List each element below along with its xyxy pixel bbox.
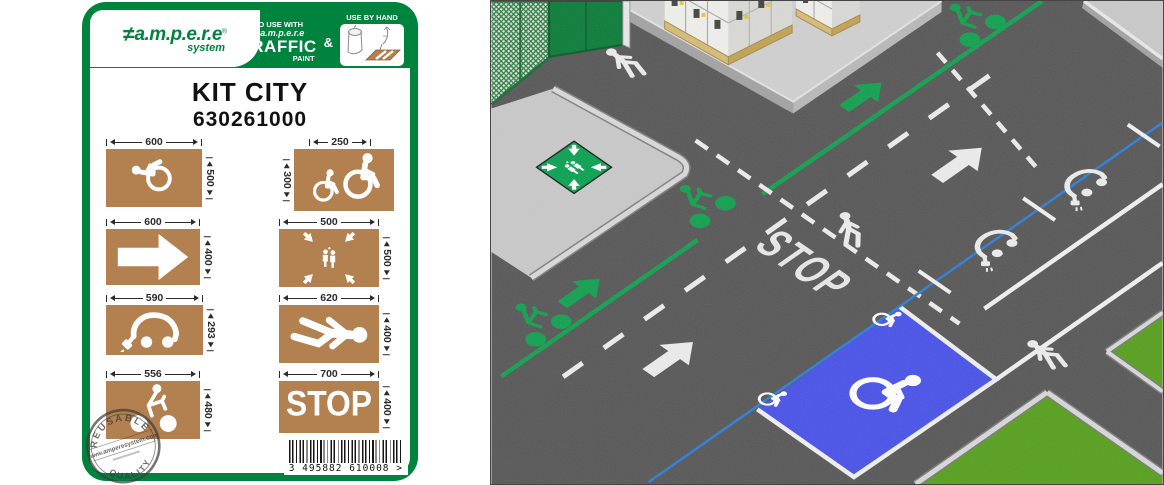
stencil-item-stop: 700 STOP 400 [279, 368, 394, 439]
texture-overlay [491, 1, 1162, 484]
dim-value: 250 [328, 136, 352, 148]
width-dimension: 250 [309, 136, 371, 148]
dim-value: 400 [381, 395, 393, 419]
stencil-box [294, 149, 394, 211]
stop-text-icon: STOP [283, 384, 375, 430]
stencil-item-arrow: 600 400 [106, 216, 218, 287]
stencil-box [279, 305, 379, 363]
dim-value: 500 [317, 216, 341, 228]
traffic-paint-block: TO USE WITH ≠ a.m.p.e.r.e TRAFFIC PAINT [240, 21, 316, 64]
brand-logo: ≠a.m.p.e.r.e® system [123, 24, 227, 54]
width-dimension: 620 [279, 292, 379, 304]
dim-value: 590 [143, 292, 167, 304]
dim-value: 300 [281, 168, 293, 192]
width-dimension: 600 [106, 136, 202, 148]
kit-card-inner: ≠a.m.p.e.r.e® system TO USE WITH ≠ a.m.p… [90, 10, 410, 473]
stencil-item-electric-car: 590 293 [106, 292, 218, 363]
brand-registered: ® [222, 28, 227, 35]
dim-value: 620 [317, 292, 341, 304]
height-dimension: 500 [204, 157, 216, 199]
kit-city-product-sheet: ≠a.m.p.e.r.e® system TO USE WITH ≠ a.m.p… [0, 0, 1164, 485]
street-scene-illustration: STOP [490, 0, 1164, 485]
dim-value: 400 [381, 322, 393, 346]
width-dimension: 556 [106, 368, 200, 380]
dim-value: 700 [317, 368, 341, 380]
header-right: TO USE WITH ≠ a.m.p.e.r.e TRAFFIC PAINT … [240, 13, 404, 71]
product-reference: 630261000 [90, 108, 410, 132]
barcode-suffix: > [396, 463, 403, 474]
dim-value: 400 [202, 245, 214, 269]
pedestrian-icon [285, 309, 373, 359]
dim-value: 600 [142, 136, 166, 148]
stencil-item-meeting-point: 500 [279, 216, 394, 287]
dim-value: 500 [381, 246, 393, 270]
height-dimension: 293 [205, 309, 217, 351]
height-dimension: 400 [381, 386, 393, 428]
meeting-point-icon [301, 230, 357, 286]
width-dimension: 590 [106, 292, 203, 304]
dim-value: 556 [141, 368, 165, 380]
stencil-grid: 600 500 [90, 132, 410, 439]
stencil-box [279, 229, 379, 287]
electric-car-icon [112, 308, 198, 352]
card-header: ≠a.m.p.e.r.e® system TO USE WITH ≠ a.m.p… [90, 10, 410, 68]
brand-plate: ≠a.m.p.e.r.e® system [90, 10, 260, 67]
stencil-box: STOP [279, 381, 379, 433]
stencil-box [106, 305, 203, 355]
barcode: 3 495882 610008 > [284, 438, 408, 475]
stencil-box [106, 149, 202, 207]
stencil-box [106, 229, 200, 285]
stencil-item-pedestrian: 620 400 [279, 292, 394, 363]
stop-label: STOP [286, 385, 372, 423]
height-dimension: 500 [381, 237, 393, 279]
barcode-bars [289, 440, 401, 463]
height-dimension: 400 [381, 313, 393, 355]
arrow-right-icon [115, 232, 191, 282]
use-by-hand-block: USE BY HAND [340, 13, 404, 71]
stencil-item-wheelchair: 600 500 [106, 136, 218, 211]
paint-label: PAINT [240, 55, 314, 63]
dim-value: 600 [141, 216, 165, 228]
width-dimension: 700 [279, 368, 379, 380]
page-title: KIT CITY [90, 77, 410, 108]
brand-glyph-icon: ≠ [123, 23, 135, 46]
hand-application-icon [340, 24, 404, 66]
wheelchair-icon [128, 152, 180, 204]
dim-value: 500 [204, 166, 216, 190]
width-dimension: 500 [279, 216, 379, 228]
kit-card: ≠a.m.p.e.r.e® system TO USE WITH ≠ a.m.p… [82, 2, 418, 481]
use-by-hand-label: USE BY HAND [340, 13, 404, 22]
ampersand-label: & [324, 35, 333, 50]
dim-value: 480 [202, 398, 214, 422]
height-dimension: 480 [202, 389, 214, 431]
height-dimension: 300 [281, 159, 293, 201]
barcode-digits: 3 495882 610008 [289, 463, 390, 474]
traffic-label: TRAFFIC [240, 39, 316, 55]
dim-value: 293 [205, 318, 217, 342]
stencil-item-wheelchair-small: 250 300 [279, 136, 394, 211]
height-dimension: 400 [202, 236, 214, 278]
width-dimension: 600 [106, 216, 200, 228]
wheelchair-small-icon [298, 151, 390, 209]
